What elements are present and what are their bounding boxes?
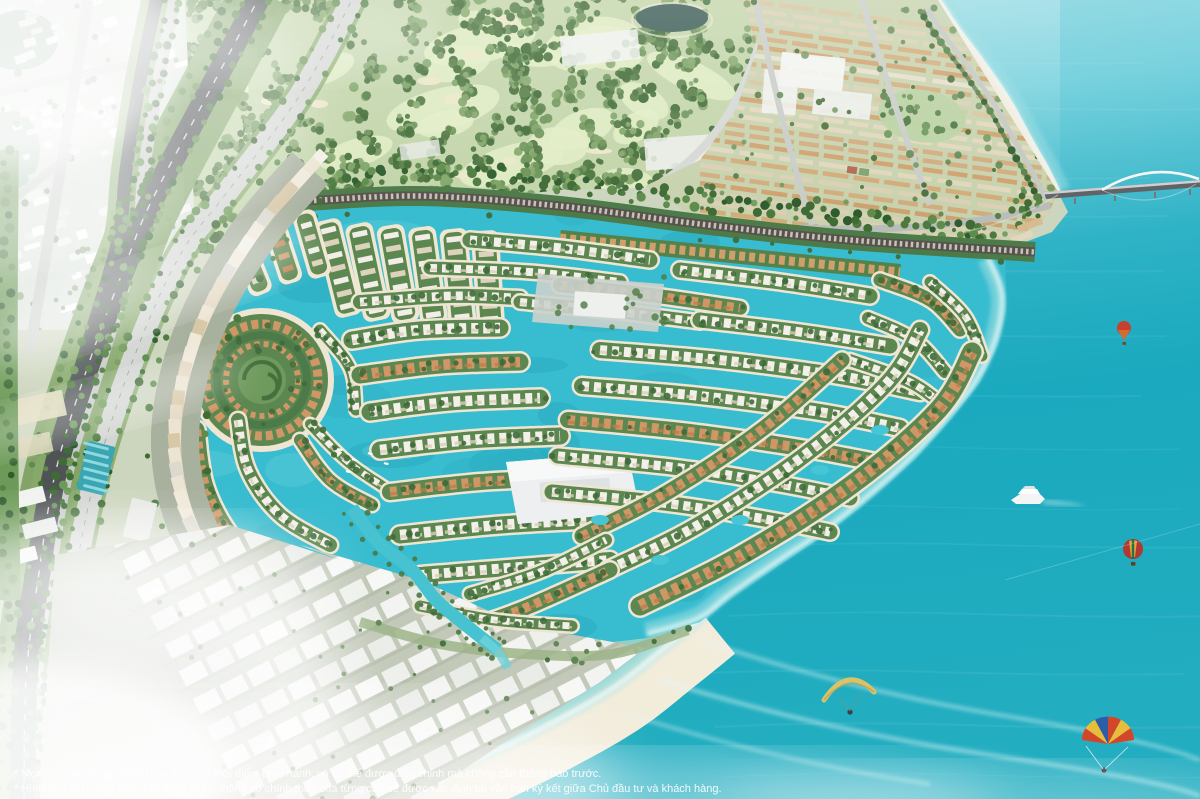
svg-text:* Mọi thông tin trong tài liệu: * Mọi thông tin trong tài liệu này đúng … xyxy=(14,768,601,780)
svg-text:* Hình ảnh chỉ mang tính chất: * Hình ảnh chỉ mang tính chất tham khảo,… xyxy=(14,783,722,795)
